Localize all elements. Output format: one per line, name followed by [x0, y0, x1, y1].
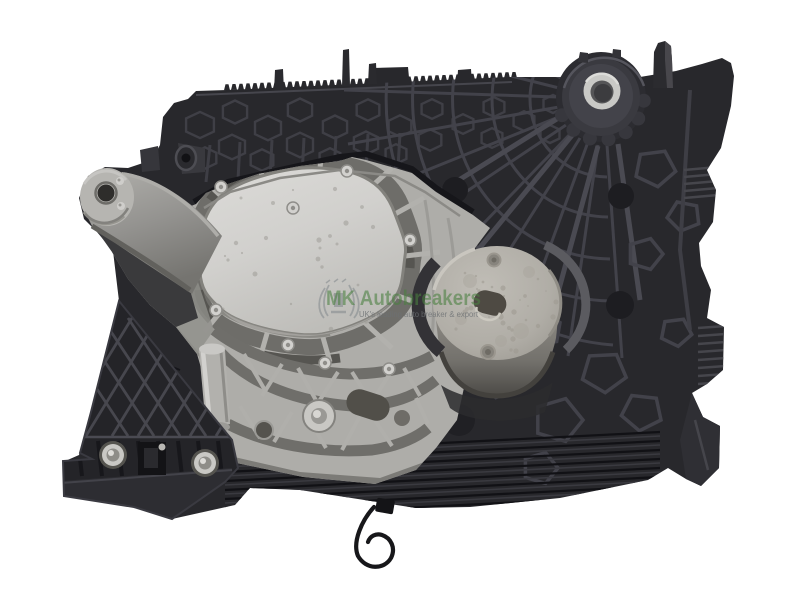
- svg-text:UK's leading auto breaker & ex: UK's leading auto breaker & export: [359, 309, 479, 319]
- svg-text:MK Autobreakers: MK Autobreakers: [326, 287, 481, 310]
